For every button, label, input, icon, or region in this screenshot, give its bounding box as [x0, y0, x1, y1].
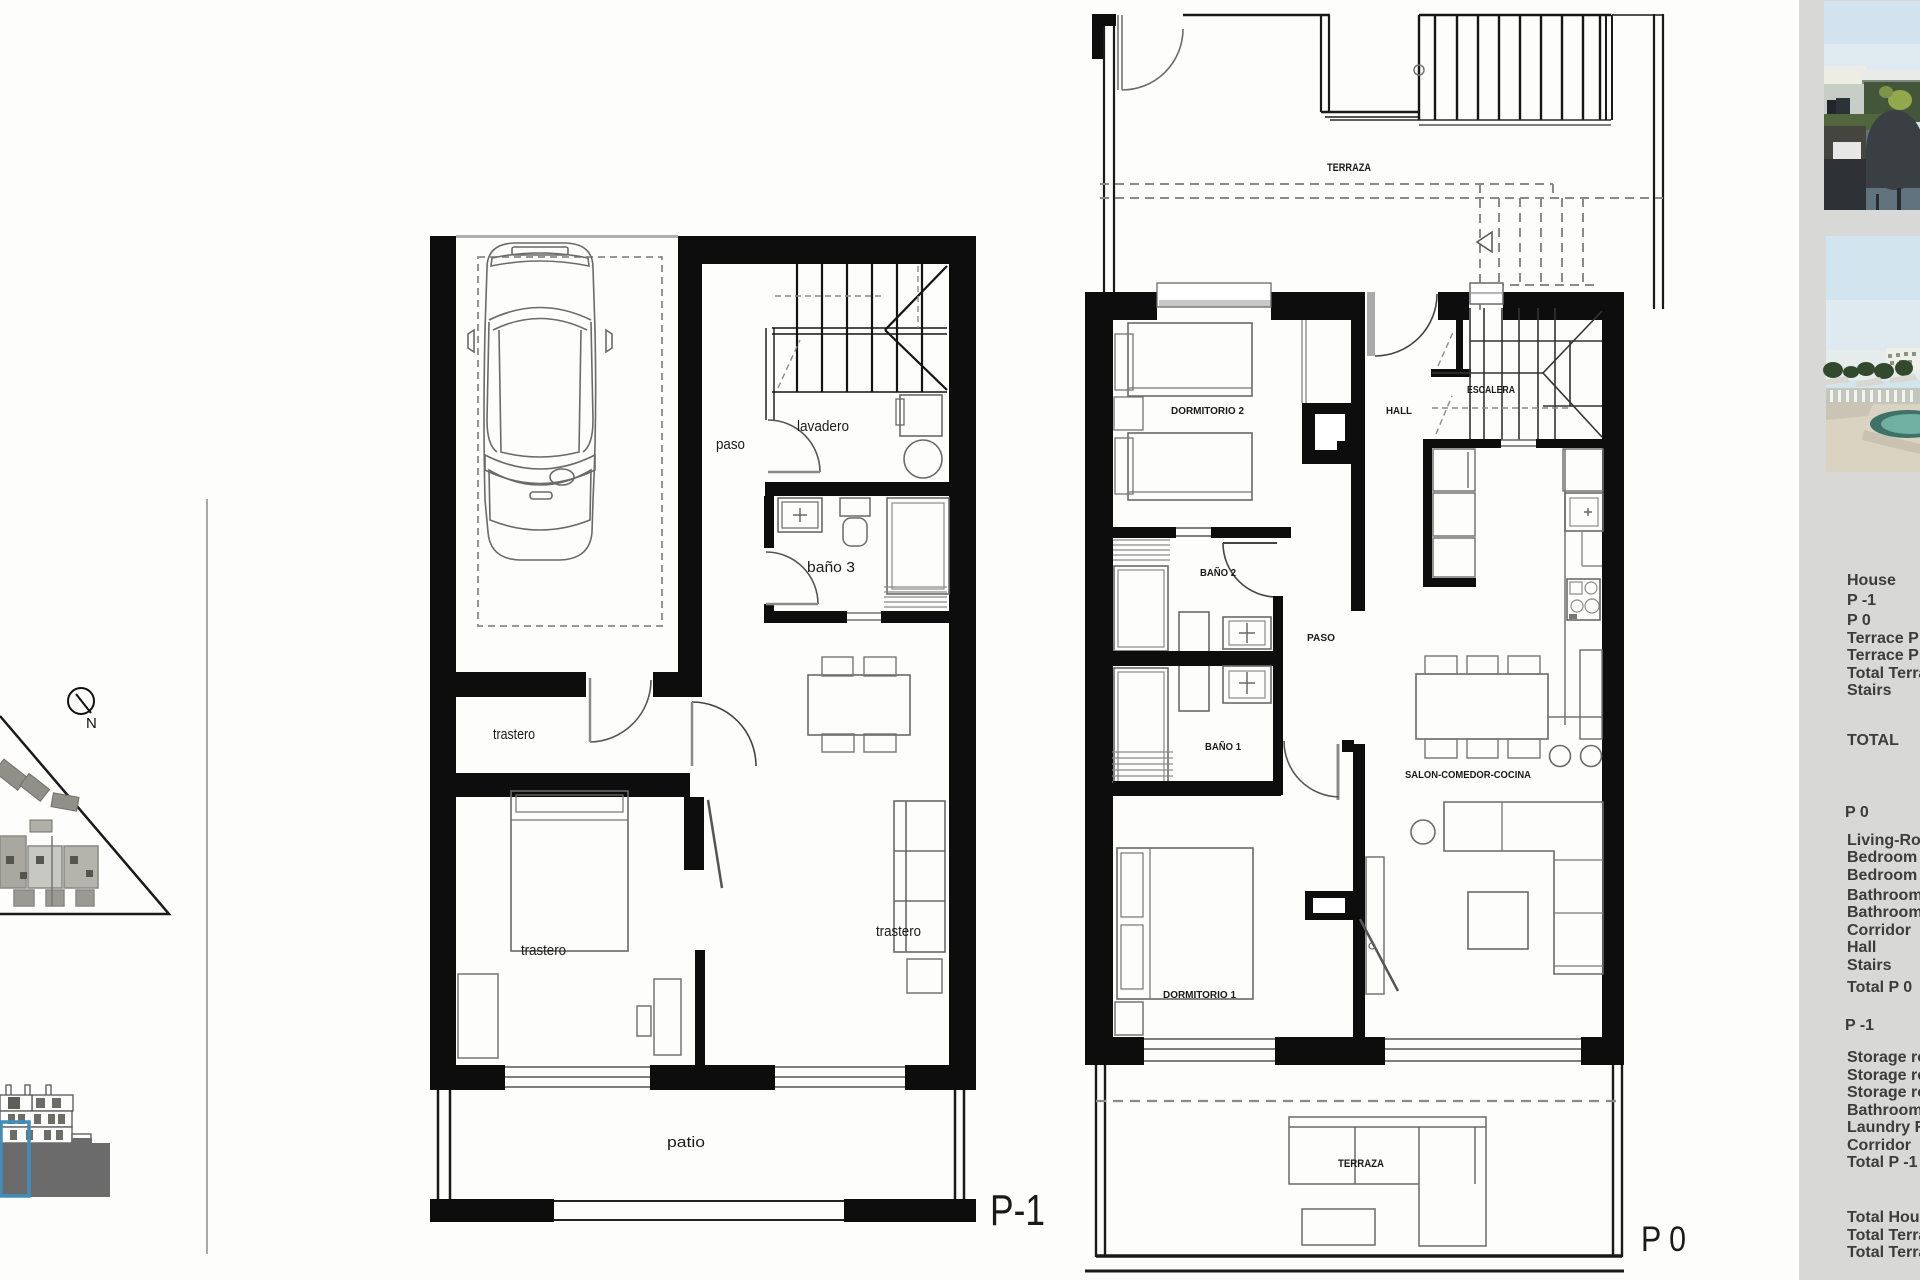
svg-text:Bedroom 2: Bedroom 2: [1847, 867, 1920, 884]
svg-text:BAÑO 1: BAÑO 1: [1205, 740, 1241, 753]
svg-text:Total Terra: Total Terra: [1847, 1244, 1920, 1261]
svg-text:P 0: P 0: [1845, 804, 1869, 821]
svg-text:DORMITORIO 2: DORMITORIO 2: [1171, 405, 1244, 417]
svg-text:paso: paso: [716, 436, 745, 453]
svg-text:DORMITORIO 1: DORMITORIO 1: [1163, 989, 1236, 1001]
svg-text:N: N: [86, 715, 97, 732]
svg-text:P 0: P 0: [1847, 612, 1871, 629]
svg-text:trastero: trastero: [876, 923, 921, 940]
svg-text:TERRAZA: TERRAZA: [1327, 162, 1371, 174]
svg-text:P -1: P -1: [1847, 592, 1876, 609]
svg-text:Hall: Hall: [1847, 939, 1876, 956]
svg-text:Stairs: Stairs: [1847, 957, 1892, 974]
svg-text:P-1: P-1: [990, 1186, 1045, 1235]
svg-text:Corridor: Corridor: [1847, 1137, 1911, 1154]
svg-text:Storage roo: Storage roo: [1847, 1084, 1920, 1101]
svg-text:P -1: P -1: [1845, 1017, 1874, 1034]
svg-text:House: House: [1847, 572, 1896, 589]
svg-text:Storage roo: Storage roo: [1847, 1067, 1920, 1084]
svg-text:Total Terra: Total Terra: [1847, 665, 1920, 682]
svg-text:SALON-COMEDOR-COCINA: SALON-COMEDOR-COCINA: [1405, 770, 1531, 781]
svg-text:Laundry Ro: Laundry Ro: [1847, 1119, 1920, 1136]
svg-text:baño 3: baño 3: [807, 559, 855, 576]
svg-text:PASO: PASO: [1307, 632, 1335, 644]
svg-text:Stairs: Stairs: [1847, 682, 1892, 699]
svg-text:TOTAL: TOTAL: [1847, 732, 1899, 749]
svg-text:HALL: HALL: [1386, 405, 1413, 417]
svg-text:Bedroom 1: Bedroom 1: [1847, 849, 1920, 866]
svg-text:Bathroom 3: Bathroom 3: [1847, 1102, 1920, 1119]
svg-text:Living-Roo: Living-Roo: [1847, 832, 1920, 849]
svg-text:patio: patio: [667, 1134, 705, 1151]
svg-text:P 0: P 0: [1641, 1220, 1686, 1259]
svg-text:Bathroom: Bathroom: [1847, 887, 1920, 904]
svg-text:Terrace P -: Terrace P -: [1847, 630, 1920, 647]
svg-text:TERRAZA: TERRAZA: [1338, 1158, 1384, 1170]
svg-text:Total Hous: Total Hous: [1847, 1209, 1920, 1226]
svg-text:Total Terra: Total Terra: [1847, 1227, 1920, 1244]
svg-text:trastero: trastero: [493, 726, 535, 743]
svg-text:BAÑO 2: BAÑO 2: [1200, 566, 1236, 579]
svg-text:ESCALERA: ESCALERA: [1467, 384, 1515, 396]
svg-text:Bathroom 2: Bathroom 2: [1847, 904, 1920, 921]
svg-text:Total P -1: Total P -1: [1847, 1154, 1918, 1171]
svg-text:lavadero: lavadero: [797, 418, 849, 435]
svg-text:Storage roo: Storage roo: [1847, 1049, 1920, 1066]
svg-text:trastero: trastero: [521, 942, 566, 959]
svg-text:Total P 0: Total P 0: [1847, 979, 1912, 996]
svg-text:Terrace P 0: Terrace P 0: [1847, 647, 1920, 664]
svg-text:Corridor: Corridor: [1847, 922, 1911, 939]
